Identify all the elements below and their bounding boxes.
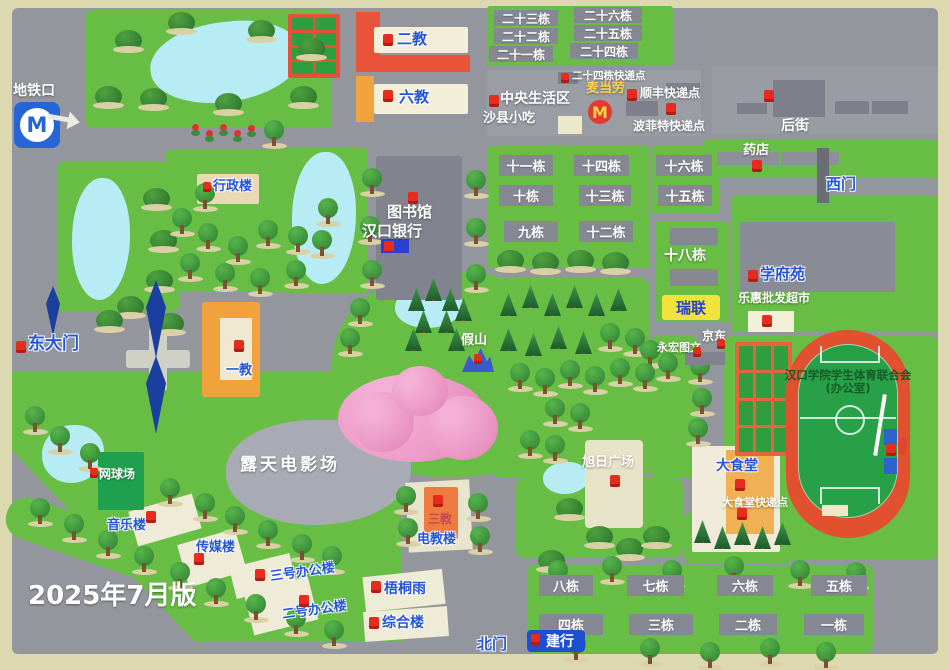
hankou-bank-logo-red [384,241,394,251]
tree-icon [264,120,284,140]
bush-icon [115,30,142,51]
tree-icon [700,642,720,662]
tree-icon [398,518,418,538]
tree-icon [610,358,630,378]
metro-entrance-label: 地铁口 [13,84,55,99]
dorm-slab: 九栋 [504,221,558,242]
tree-icon [50,426,70,446]
dorm-slab: 七栋 [627,575,684,596]
tree-icon [206,578,226,598]
tree-icon [466,170,486,190]
teaching1-label: 一教 [226,364,252,378]
pin-zonghe [369,617,379,629]
tree-icon [585,366,605,386]
pin-rockery [474,354,482,364]
pin-tennis [90,468,98,478]
pin-office2 [299,595,309,607]
tree-icon [602,556,622,576]
tree-icon [30,498,50,518]
admin-label: 行政楼 [213,180,252,194]
zonghe-label: 综合楼 [382,616,424,631]
tree-icon [228,236,248,256]
sf-express-label: 顺丰快递点 [640,87,700,100]
canteen-express-label: 大食堂快递点 [722,497,788,509]
pin-office3 [255,569,265,581]
ruilian-badge: 瑞联 [662,295,720,320]
tree-icon [640,638,660,658]
dorm-slab: 十四栋 [574,155,629,176]
bush-icon [532,252,559,273]
tree-icon [466,218,486,238]
tree-icon [172,208,192,228]
west-gate-label: 西门 [826,176,856,193]
dorm-slab: 二十四栋 [570,43,638,59]
bush-icon [96,310,123,331]
stadium-goal-south [820,487,880,504]
bush-icon [643,526,670,547]
bush-icon [556,498,583,519]
bush-icon [117,296,144,317]
tree-icon [510,363,530,383]
bush-icon [143,188,170,209]
tree-icon [258,520,278,540]
dorm-slab: 二十六栋 [574,7,642,23]
bush-icon [602,252,629,273]
express24-label: 二十四栋快递点 [572,71,646,83]
tree-icon [340,328,360,348]
mcdonalds-logo: M [588,100,612,124]
library-label: 图书馆 [387,204,432,221]
pin-teaching3 [433,495,443,507]
dorm-slab: 十二栋 [579,221,633,242]
tree-icon [80,443,100,463]
tree-icon [198,223,218,243]
tree-icon [396,486,416,506]
stadium-center-circle [835,405,865,435]
supermarket-label: 乐惠批发超市 [738,292,810,305]
tree-icon [215,263,235,283]
pin-central-living [489,95,499,107]
flower-icon [206,130,213,137]
ccb-bank-label: 建行 [546,631,574,651]
tennis-label: 网球场 [99,468,135,481]
tree-icon [195,493,215,513]
pin-jd [717,339,725,349]
tree-icon [362,260,382,280]
backstreet-building [872,101,908,114]
mcd-m-letter: M [592,103,608,122]
tree-icon [134,546,154,566]
pharmacy-label: 药店 [743,144,769,158]
backstreet-strip [712,66,938,134]
tree-icon [688,418,708,438]
tree-icon [288,226,308,246]
canteen-label: 大食堂 [716,459,758,474]
tree-icon [790,560,810,580]
flower-icon [220,124,227,131]
tree-icon [560,360,580,380]
teaching6-building [356,76,374,122]
teaching2-label: 二教 [397,31,427,48]
bush-icon [616,538,643,559]
pin-teaching1 [234,340,244,352]
sports-assoc-label-1: 汉口学院学生体育联合会 [782,369,914,382]
tree-icon [318,198,338,218]
pin-music [146,511,156,523]
tree-icon [246,594,266,614]
flower-icon [192,124,199,131]
east-gate-label: 东大门 [28,335,79,354]
bush-icon [586,526,613,547]
pin-xuefuyuan [748,270,758,282]
tree-icon [658,353,678,373]
tree-icon [160,478,180,498]
tree-icon [225,506,245,526]
bush-icon [146,270,173,291]
teaching6-label: 六教 [399,89,429,106]
tree-icon [466,264,486,284]
dorm-slab: 十一栋 [499,155,553,176]
dorm-slab: 十栋 [499,185,553,206]
tree-icon [250,268,270,288]
pin-media [194,553,204,565]
dorm-slab: 八栋 [539,575,593,596]
bush-icon [497,250,524,271]
pin-bofeite [666,103,676,115]
dorm-slab: 二十二栋 [494,28,558,44]
central-living-label: 中央生活区 [500,92,570,107]
tree-icon [816,642,836,662]
eteach-label: 电教楼 [417,533,456,547]
cherry-blossom-patch [392,366,448,416]
pin-east-gate [16,341,26,353]
pin-teaching2 [383,34,393,46]
teaching2-building [356,55,470,72]
pin-ccb [531,634,540,645]
tree-icon [545,435,565,455]
tree-icon [286,260,306,280]
tree-icon [545,398,565,418]
tree-icon [362,168,382,188]
bofeite-label: 波菲特快递点 [633,120,705,133]
tree-icon [312,230,332,250]
stadium-side-red [898,437,907,455]
bush-icon [290,86,317,107]
tree-icon [600,323,620,343]
pin-sf-express [627,89,637,101]
version-label: 2025年7月版 [28,582,196,611]
backstreet-building [835,101,869,114]
tree-icon [520,430,540,450]
tree-icon [724,556,744,576]
dorm18-building [670,228,718,245]
tree-icon [180,253,200,273]
bush-icon [298,38,325,59]
dorm-slab: 十六栋 [656,155,712,176]
dorm-slab: 三栋 [629,614,693,635]
north-gate-label: 北门 [477,636,507,653]
pin-express24 [561,73,569,83]
stadium-board [822,505,848,516]
dorm-slab: 二十一栋 [489,46,553,62]
pin-canteen-express [737,508,747,520]
pin-backstreet [764,90,774,102]
pin-canteen [735,479,745,491]
rockery-label: 假山 [461,334,487,348]
bush-icon [248,20,275,41]
tree-icon [350,298,370,318]
stadium-goal-north [820,346,880,363]
bush-icon [95,86,122,107]
plaza-label: 旭日广场 [582,456,634,470]
pin-yonghong [693,347,701,357]
dorm-slab: 二十三栋 [494,10,558,26]
dorm-slab: 十五栋 [658,185,712,206]
pin-stadium-side [886,444,896,456]
pin-admin [203,182,211,192]
sports-assoc-label-2: (办公室) [782,382,914,395]
pin-library [408,192,418,204]
stadium-side-blue [884,458,897,474]
living-strip-kiosk [558,116,582,134]
flower-icon [248,125,255,132]
backstreet-label: 后街 [781,119,809,134]
stadium-side-blue [884,429,897,445]
pin-pharmacy [752,160,762,172]
tree-icon [635,363,655,383]
shaxian-label: 沙县小吃 [483,112,535,126]
backstreet-building [737,103,767,114]
cinema-label: 露天电影场 [240,456,340,475]
pin-plaza [610,475,620,487]
dorm18-building [670,269,718,286]
music-label: 音乐楼 [107,519,146,533]
tree-icon [324,620,344,640]
bush-icon [168,12,195,33]
dorm18-label: 十八栋 [664,249,706,264]
dorm-slab: 六栋 [717,575,773,596]
tree-icon [170,562,190,582]
tree-icon [470,526,490,546]
tree-icon [535,368,555,388]
dorm-slab: 二十五栋 [574,25,642,41]
xuefuyuan-label: 学府苑 [760,266,805,283]
dorm-slab: 一栋 [804,614,864,635]
tree-icon [25,406,45,426]
tree-icon [258,220,278,240]
tree-icon [760,638,780,658]
dorm-slab: 二栋 [719,614,777,635]
hankou-bank-label: 汉口银行 [362,223,422,240]
teaching3-label: 三教 [428,513,452,526]
pharmacy-building [781,152,839,165]
pin-wutong [371,581,381,593]
ruilian-label: 瑞联 [676,297,706,318]
basketball-courts [735,342,792,456]
tree-icon [468,493,488,513]
metro-logo: M [14,102,60,148]
bush-icon [567,250,594,271]
flower-icon [234,130,241,137]
tree-icon [692,388,712,408]
pin-teaching6 [383,90,393,102]
dorm-slab: 五栋 [811,575,867,596]
tree-icon [570,403,590,423]
living-strip-building [626,101,658,116]
tree-icon [292,534,312,554]
campus-map: M M 二十三栋 二十六栋 二十二栋 二十五栋 二十一栋 二十四栋 十一栋 十四… [0,0,950,670]
mcdonalds-label: 麦当劳 [586,82,625,96]
pin-supermarket [762,315,772,327]
bush-icon [140,88,167,109]
wutong-label: 梧桐雨 [384,582,426,597]
bush-icon [215,93,242,114]
tree-icon [64,514,84,534]
backstreet-building [773,80,825,117]
dorm-slab: 十三栋 [579,185,631,206]
